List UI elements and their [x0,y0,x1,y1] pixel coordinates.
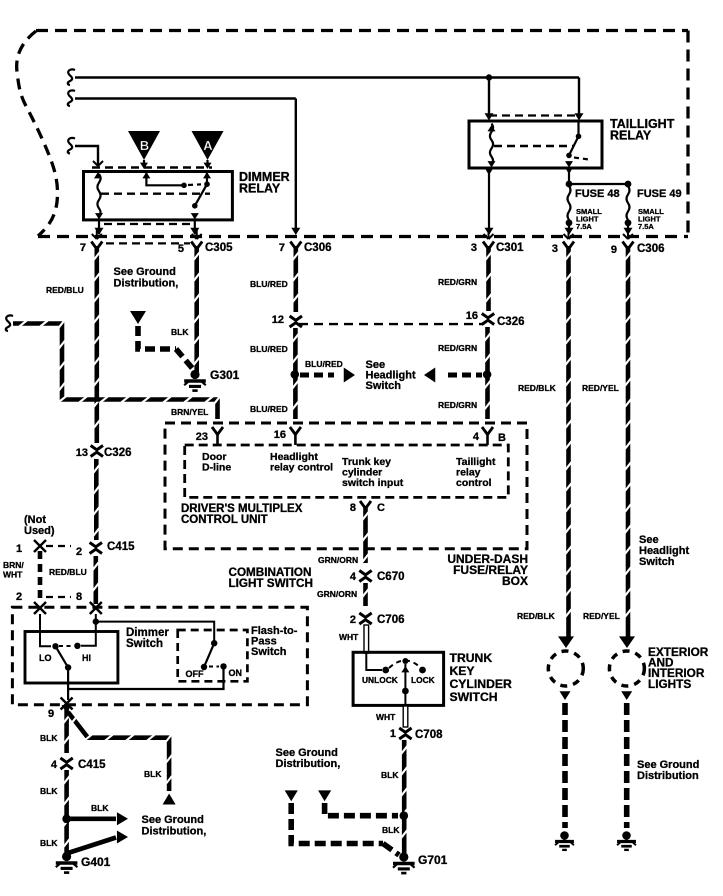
svg-text:FUSE 48: FUSE 48 [575,188,620,200]
svg-text:Distribution,: Distribution, [276,758,341,770]
svg-text:OFF: OFF [186,669,204,679]
svg-text:C415: C415 [107,541,135,553]
svg-text:9: 9 [611,244,617,256]
svg-text:2: 2 [16,591,22,603]
svg-text:C670: C670 [377,571,405,583]
svg-text:8: 8 [350,502,356,514]
svg-text:7.5A: 7.5A [576,222,592,231]
svg-text:D-line: D-line [202,462,231,474]
svg-text:C306: C306 [304,242,332,254]
svg-text:RED/BLK: RED/BLK [517,611,556,621]
svg-text:BLU/RED: BLU/RED [250,344,288,354]
svg-text:G301: G301 [210,368,240,382]
svg-text:2: 2 [350,614,356,626]
svg-text:BOX: BOX [502,574,528,588]
svg-text:switch input: switch input [342,477,404,489]
svg-text:BLK: BLK [40,838,58,848]
svg-text:GRN/ORN: GRN/ORN [318,555,358,565]
svg-text:Switch: Switch [126,638,163,650]
svg-text:23: 23 [196,431,208,443]
svg-text:RED/BLU: RED/BLU [49,567,87,577]
svg-text:RED/GRN: RED/GRN [438,277,477,287]
svg-text:LIGHT SWITCH: LIGHT SWITCH [229,577,313,590]
svg-text:BLK: BLK [381,770,399,780]
svg-text:Switch: Switch [366,380,402,392]
svg-text:C: C [377,502,385,514]
svg-text:BLK: BLK [144,769,162,779]
svg-text:RED/BLK: RED/BLK [518,383,557,393]
svg-text:control: control [456,477,492,489]
svg-text:WHT: WHT [339,632,359,642]
svg-text:BRN/YEL: BRN/YEL [171,407,208,417]
svg-text:8: 8 [76,591,82,603]
svg-text:WHT: WHT [3,570,23,580]
svg-text:4: 4 [350,571,357,583]
svg-text:CONTROL UNIT: CONTROL UNIT [181,514,268,526]
svg-text:G401: G401 [81,855,111,869]
svg-text:1: 1 [16,543,22,555]
svg-text:16: 16 [466,310,478,322]
svg-text:Used): Used) [24,525,55,537]
svg-text:LOCK: LOCK [411,675,435,685]
svg-text:Switch: Switch [251,646,287,658]
svg-text:4: 4 [473,431,480,443]
svg-text:B: B [140,138,149,153]
svg-text:KEY: KEY [450,664,475,678]
svg-text:C415: C415 [78,759,106,771]
svg-text:Switch: Switch [639,556,675,568]
svg-text:SWITCH: SWITCH [450,690,498,704]
svg-text:GRN/ORN: GRN/ORN [317,589,357,599]
svg-text:C305: C305 [205,242,233,254]
svg-text:BLK: BLK [91,803,109,813]
svg-text:16: 16 [274,429,286,441]
svg-text:1: 1 [390,728,396,740]
svg-text:C708: C708 [415,729,443,741]
svg-text:C301: C301 [496,242,524,254]
svg-text:BLK: BLK [40,733,58,743]
svg-text:WHT: WHT [376,712,396,722]
svg-text:RED/YEL: RED/YEL [583,611,620,621]
svg-text:BLK: BLK [171,327,189,337]
svg-text:7: 7 [279,242,285,254]
svg-text:Distribution,: Distribution, [114,278,179,290]
svg-text:CYLINDER: CYLINDER [450,677,512,691]
svg-text:C706: C706 [377,614,405,626]
svg-text:FUSE 49: FUSE 49 [637,188,682,200]
svg-text:12: 12 [272,314,284,326]
svg-text:TRUNK: TRUNK [450,651,493,665]
svg-text:C306: C306 [637,243,665,255]
svg-text:RELAY: RELAY [239,182,281,196]
svg-text:BLU/RED: BLU/RED [250,404,288,414]
svg-text:BRN/: BRN/ [3,560,24,570]
svg-text:Distribution,: Distribution, [142,826,207,838]
svg-text:A: A [203,138,213,153]
svg-text:13: 13 [76,447,88,459]
svg-text:2: 2 [76,546,82,558]
svg-text:ON: ON [229,668,243,678]
svg-text:Distribution: Distribution [637,770,699,782]
svg-text:RED/BLU: RED/BLU [46,285,84,295]
svg-text:relay control: relay control [270,462,333,474]
svg-text:3: 3 [471,242,477,254]
svg-text:RED/GRN: RED/GRN [438,400,477,410]
svg-text:C326: C326 [104,447,132,459]
svg-text:UNLOCK: UNLOCK [362,675,398,685]
svg-text:RED/YEL: RED/YEL [582,383,619,393]
svg-text:B: B [498,432,506,444]
svg-text:LO: LO [39,653,52,663]
svg-text:7.5A: 7.5A [638,222,654,231]
svg-text:LIGHTS: LIGHTS [648,677,691,691]
svg-text:BLK: BLK [40,786,58,796]
svg-text:5: 5 [178,243,184,255]
svg-text:7: 7 [80,242,86,254]
svg-text:RELAY: RELAY [610,129,652,143]
svg-text:4: 4 [51,759,58,771]
svg-text:See Ground: See Ground [114,266,176,278]
svg-text:See Ground: See Ground [142,814,204,826]
svg-text:C326: C326 [497,316,525,328]
svg-text:3: 3 [552,243,558,255]
svg-text:HI: HI [82,653,91,663]
svg-text:BLU/RED: BLU/RED [250,279,288,289]
svg-text:9: 9 [48,708,54,720]
svg-text:RED/GRN: RED/GRN [438,343,477,353]
svg-text:BLK: BLK [382,825,400,835]
svg-text:G701: G701 [418,853,448,867]
svg-text:BLU/RED: BLU/RED [305,359,343,369]
